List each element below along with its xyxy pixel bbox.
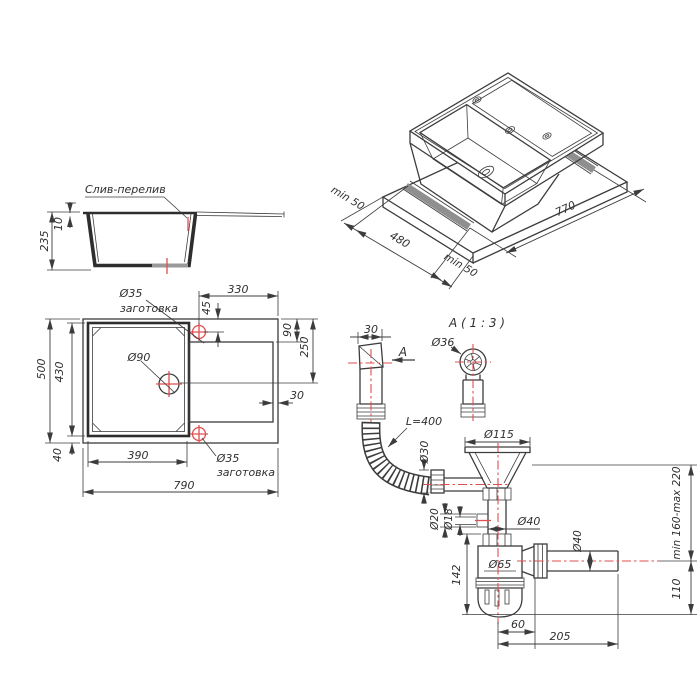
dim-min50-left: min 50 (329, 184, 367, 213)
dim-outlet-height: 110 (670, 561, 691, 615)
isometric-view: 770 480 min 50 min 50 (329, 73, 646, 289)
bowl-wall-inner-lines (93, 214, 192, 262)
bowl-inner-line-plan (93, 328, 185, 432)
dim-pipe-dia: Ø40 (488, 515, 540, 529)
view-a-label: A (398, 345, 407, 359)
dim-30-plan: 30 (290, 389, 304, 402)
dim-790: 790 (174, 479, 195, 492)
drainboard-profile (197, 212, 284, 218)
bowl-corner-fillets (93, 328, 185, 432)
dim-45: 45 (200, 301, 213, 315)
hole-35-top: Ø35 заготовка (119, 287, 208, 343)
dim-142: 142 (450, 565, 463, 586)
dim-250: 250 (298, 337, 311, 358)
sink-outline-plan (83, 319, 278, 443)
label-hole-bottom-note: заготовка (217, 466, 275, 479)
dim-stub: Ø20 Ø18 (429, 503, 476, 538)
dim-board-edge-offset: 30 (259, 389, 304, 403)
drainboard-plan (189, 342, 273, 422)
dim-110: 110 (670, 579, 683, 600)
dim-10: 10 (52, 217, 65, 231)
sink-installation-drawing: 770 480 min 50 min 50 Слив-перелив 235 (0, 0, 700, 700)
dim-160-220: min 160-max 220 (671, 466, 683, 560)
bowl-section-outline (88, 214, 196, 266)
siphon-view: 30 A A ( 1 : 3 ) Ø36 L=400 (348, 316, 697, 649)
dim-115: Ø115 (483, 428, 514, 441)
dim-board-top-offset: 90 (276, 319, 318, 342)
detail-a-title: A ( 1 : 3 ) (448, 316, 505, 330)
dim-bowl-depth: 430 (53, 323, 85, 436)
dim-480: 480 (387, 229, 412, 251)
dim-65: Ø65 (488, 558, 512, 571)
overflow-label: Слив-перелив (85, 183, 166, 196)
label-hole-top-dia: Ø35 (119, 287, 143, 300)
label-drain-dia: Ø90 (127, 351, 151, 364)
drain-hole-90: Ø90 (127, 351, 182, 397)
dim-bowl-width: 390 (88, 441, 187, 467)
dim-board-center-offset: 250 (298, 319, 313, 383)
dim-430: 430 (53, 362, 66, 383)
detail-a: A ( 1 : 3 ) Ø36 (431, 316, 505, 421)
dim-hole-offset: 45 (200, 301, 224, 347)
dim-235: 235 (38, 231, 51, 252)
plan-view: Ø90 Ø35 заготовка Ø35 заготовка 330 (35, 283, 318, 497)
overflow-elbow (348, 343, 393, 431)
view-arrow-A: A (392, 345, 415, 360)
label-hose-length: L=400 (406, 415, 442, 428)
dim-205: 205 (550, 630, 571, 643)
dim-390: 390 (128, 449, 149, 462)
dim-overflow-pipe: 30 (350, 323, 391, 344)
dim-40-outlet: Ø40 (572, 530, 584, 553)
dim-20: Ø20 (429, 508, 441, 531)
label-hole-bottom-dia: Ø35 (216, 452, 240, 465)
label-hole-top-note: заготовка (120, 302, 178, 315)
dim-40-pipe: Ø40 (517, 515, 541, 528)
dim-90: 90 (281, 323, 294, 337)
bowl-outline-plan (88, 323, 189, 436)
dim-330: 330 (228, 283, 249, 296)
dim-30-hose: Ø30 (418, 441, 431, 465)
dim-40: 40 (51, 448, 64, 462)
hose-length-callout: L=400 (388, 415, 442, 447)
side-view: Слив-перелив 235 10 (38, 183, 284, 274)
hole-35-bottom: Ø35 заготовка (190, 425, 275, 479)
dim-18: Ø18 (443, 508, 455, 531)
trap-body: Ø65 (476, 443, 659, 624)
dim-500: 500 (35, 359, 48, 380)
dim-60: 60 (511, 618, 525, 631)
dim-30-elbow: 30 (364, 323, 378, 336)
hose-fitting (423, 470, 508, 493)
technical-drawing-sheet: 770 480 min 50 min 50 Слив-перелив 235 (0, 0, 700, 700)
dim-overflow-head: Ø36 (431, 336, 455, 349)
dim-rim-height: 10 (52, 202, 76, 231)
dim-adjust-range: min 160-max 220 (532, 465, 697, 561)
dim-edge-offset: 40 (51, 426, 72, 462)
